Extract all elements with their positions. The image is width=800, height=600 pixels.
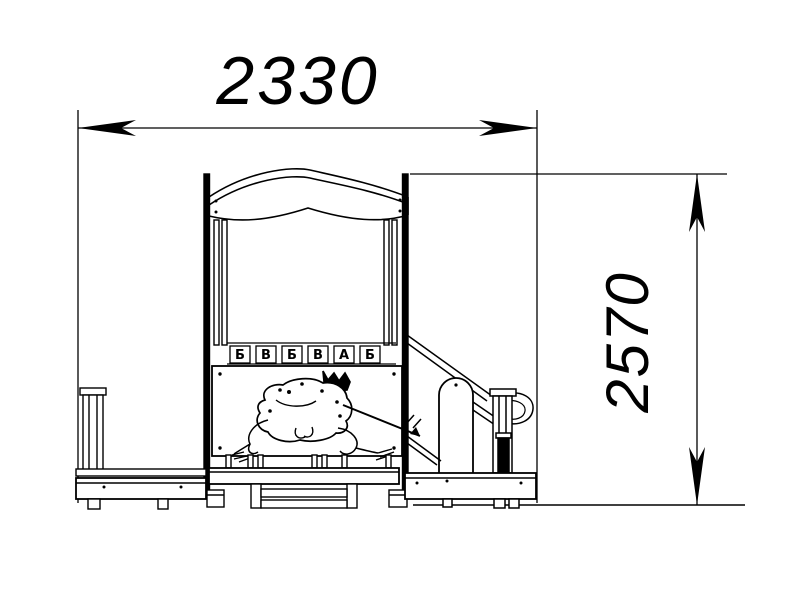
slide-base-platform [405,473,536,499]
block-letter: В [261,348,271,363]
bench-rail [76,469,206,476]
bench-post-cap [80,388,106,395]
post-foot-left [207,490,224,507]
block-letter: Б [235,348,245,363]
bench-foot [88,499,100,509]
step-board-lower [261,489,347,497]
height-dimension-label: 2570 [594,271,661,413]
tower-post-left [204,174,210,490]
tower-inner-post [222,220,227,345]
tower-inner-post [214,220,219,345]
bench-post [83,395,103,472]
slide-post-cap [490,389,516,396]
roof-beam [209,169,408,220]
tower [204,174,408,507]
left-bench [76,388,206,509]
width-dimension-label: 2330 [215,43,379,119]
block-letter: А [339,348,349,363]
block-letter: В [313,348,323,363]
slide-foot [509,499,519,508]
slide [405,335,536,508]
tower-post-right [403,174,409,490]
block-letter: Б [287,348,297,363]
step-board-upper [209,468,399,484]
drawing-canvas: 2330 2570 [0,0,800,600]
slide-foot [443,499,452,507]
block-letter: Б [365,348,375,363]
bench-foot [158,499,168,509]
frog-panel [212,366,421,462]
slide-foot [494,499,505,508]
tower-inner-post [392,220,397,345]
technical-drawing: 2330 2570 [0,0,800,600]
slide-sidewall [439,378,473,473]
tower-inner-post [384,220,389,345]
bench-board [76,478,206,499]
front-steps [209,455,399,508]
slide-handrail-lower [407,436,441,465]
letter-block-rail: Б В Б В А Б [227,343,396,364]
